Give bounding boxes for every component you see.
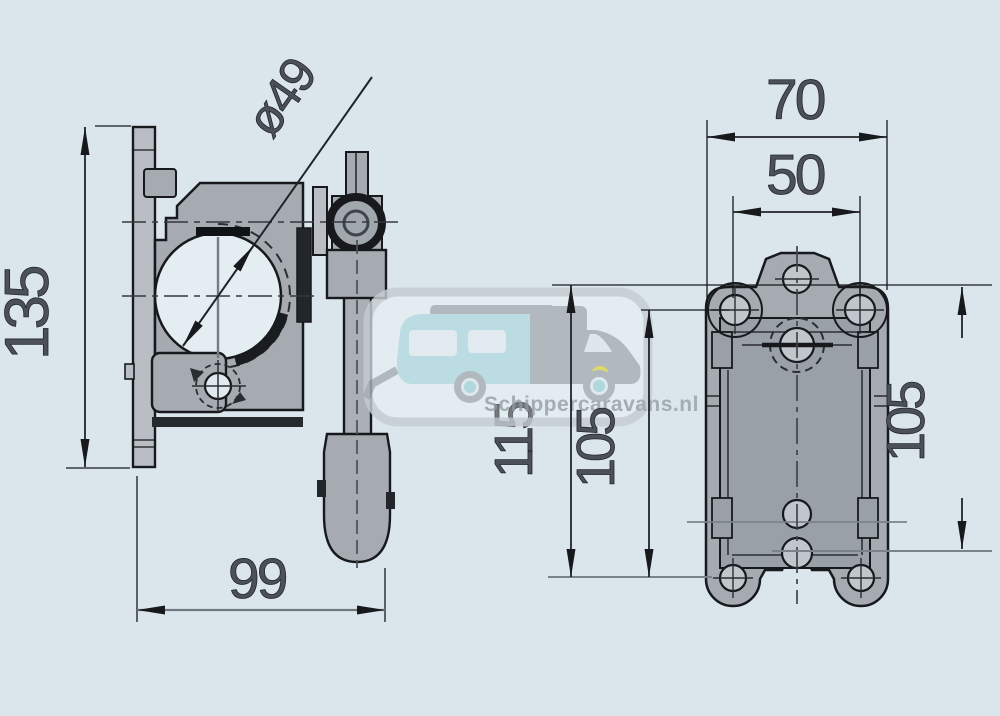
dim-side-height-label: 135: [0, 267, 62, 360]
technical-drawing: 135 ø49 99: [0, 0, 1000, 716]
casting-ear: [144, 169, 176, 197]
dim-front-width-label: 70: [766, 68, 825, 132]
dim-side-width-label: 99: [228, 547, 286, 611]
jaw-plate: [297, 228, 311, 322]
pivot-washer: [313, 187, 327, 255]
dim-front-edge-to-center-hole-label: 105: [876, 382, 936, 462]
pivot-stub: [346, 152, 368, 196]
pivot-bolt: [330, 197, 382, 249]
dim-front-hole-spacing-v-label: 105: [566, 408, 626, 488]
body-bottom-flange: [152, 417, 303, 427]
drawing-canvas: 135 ø49 99: [0, 0, 1000, 716]
dim-front-hole-spacing-h-label: 50: [766, 143, 825, 207]
